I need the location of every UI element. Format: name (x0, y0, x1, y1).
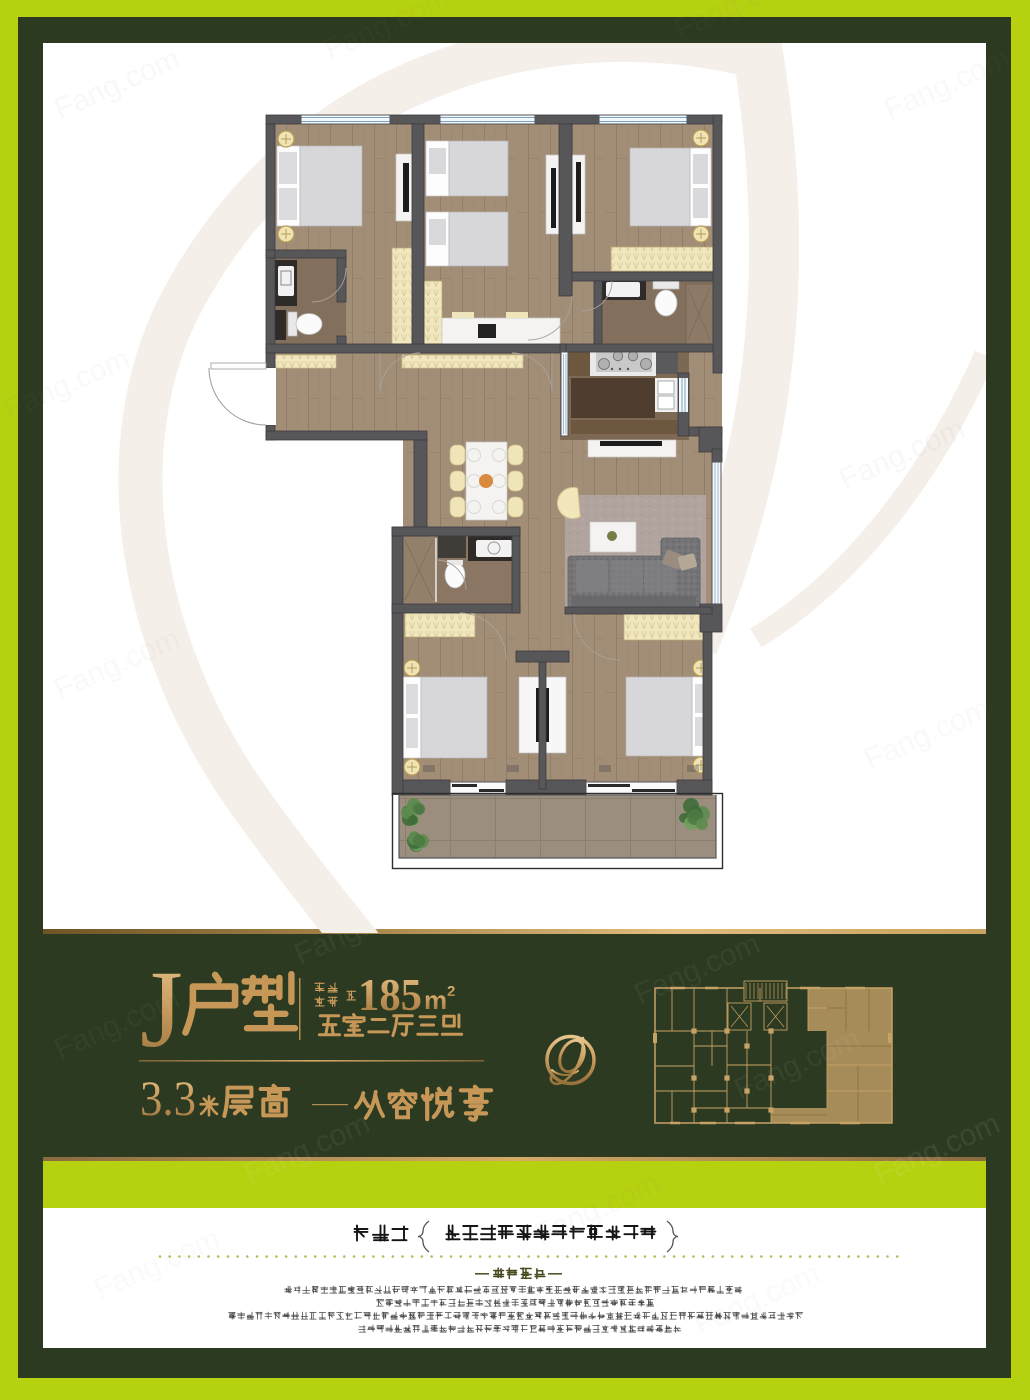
svg-text:Fang.com: Fang.com (869, 1107, 1004, 1191)
svg-text:Fang.com: Fang.com (49, 622, 184, 706)
svg-text:Fang.com: Fang.com (834, 412, 969, 496)
svg-text:Fang.com: Fang.com (629, 927, 764, 1011)
svg-text:Fang.com: Fang.com (239, 1107, 374, 1191)
svg-text:Fang.com: Fang.com (289, 887, 424, 971)
svg-text:Fang.com: Fang.com (319, 0, 454, 66)
svg-text:Fang.com: Fang.com (529, 1167, 664, 1251)
svg-text:Fang.com: Fang.com (859, 692, 994, 776)
svg-text:Fang.com: Fang.com (49, 42, 184, 126)
svg-text:Fang.com: Fang.com (669, 0, 804, 46)
svg-text:Fang.com: Fang.com (89, 1222, 224, 1306)
svg-text:Fang.com: Fang.com (0, 342, 135, 426)
svg-text:Fang.com: Fang.com (689, 1257, 824, 1341)
svg-text:Fang.com: Fang.com (879, 42, 1014, 126)
svg-text:Fang.com: Fang.com (729, 1022, 864, 1106)
svg-text:Fang.com: Fang.com (49, 982, 184, 1066)
